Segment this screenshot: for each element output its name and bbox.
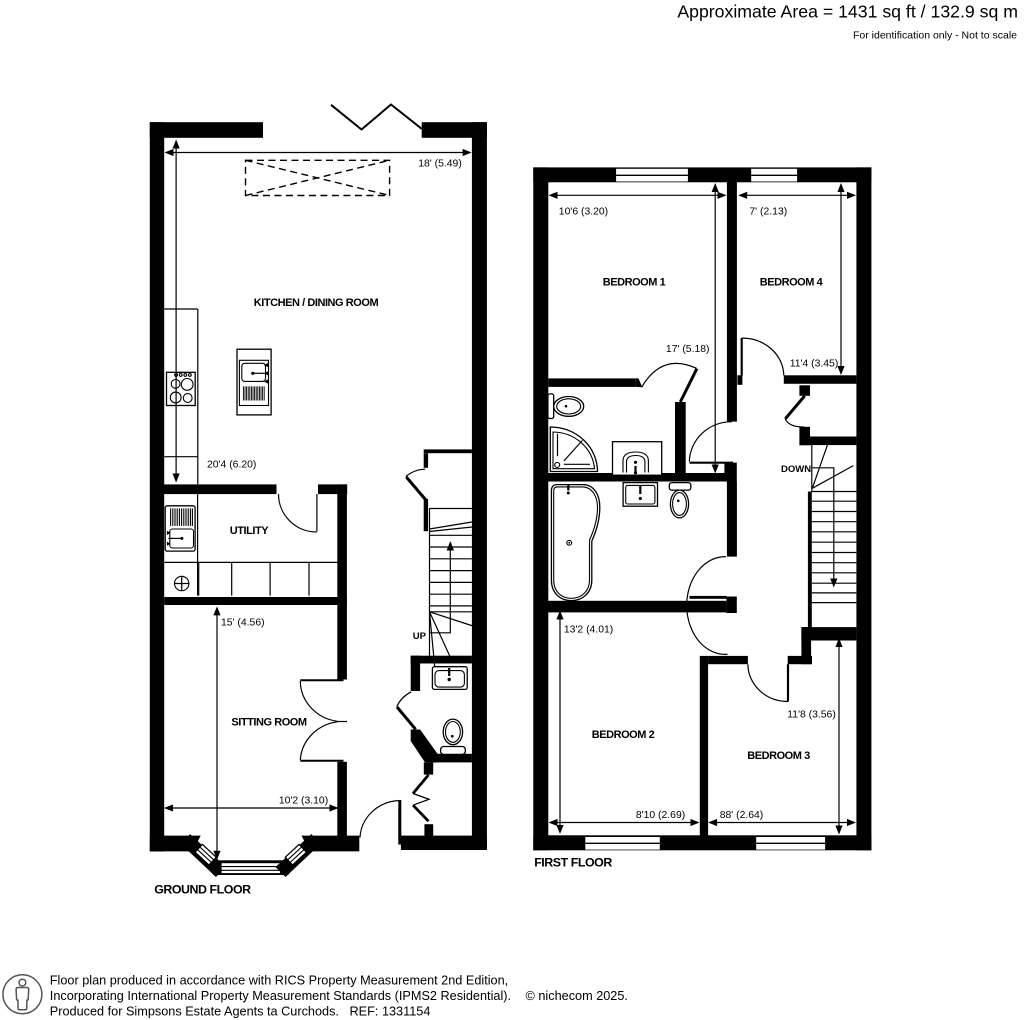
svg-text:17' (5.18): 17' (5.18) [666, 344, 710, 355]
svg-text:Incorporating International Pr: Incorporating International Property Mea… [50, 989, 511, 1003]
svg-text:© nichecom 2025.: © nichecom 2025. [526, 989, 628, 1003]
svg-text:DOWN: DOWN [781, 464, 811, 475]
svg-text:Approximate Area = 1431 sq ft: Approximate Area = 1431 sq ft / 132.9 sq… [677, 2, 1018, 22]
svg-text:Produced for Simpsons Estate A: Produced for Simpsons Estate Agents ta C… [50, 1004, 431, 1018]
svg-text:13'2 (4.01): 13'2 (4.01) [564, 624, 613, 635]
svg-text:KITCHEN / DINING ROOM: KITCHEN / DINING ROOM [254, 297, 379, 309]
svg-text:GROUND FLOOR: GROUND FLOOR [154, 883, 251, 897]
svg-text:15' (4.56): 15' (4.56) [221, 618, 265, 629]
svg-text:BEDROOM 4: BEDROOM 4 [760, 276, 824, 288]
svg-text:UP: UP [413, 631, 427, 642]
svg-text:18' (5.49): 18' (5.49) [418, 159, 462, 170]
svg-text:8'10 (2.69): 8'10 (2.69) [636, 810, 685, 821]
svg-text:BEDROOM 3: BEDROOM 3 [747, 750, 810, 762]
svg-text:For identification only - Not: For identification only - Not to scale [853, 30, 1017, 42]
svg-text:11'8 (3.56): 11'8 (3.56) [787, 710, 836, 721]
svg-text:7' (2.13): 7' (2.13) [749, 207, 787, 218]
svg-text:88' (2.64): 88' (2.64) [720, 810, 764, 821]
svg-text:SITTING ROOM: SITTING ROOM [231, 716, 307, 728]
svg-text:11'4 (3.45): 11'4 (3.45) [790, 359, 839, 370]
svg-text:10'6 (3.20): 10'6 (3.20) [559, 207, 608, 218]
svg-text:FIRST FLOOR: FIRST FLOOR [534, 855, 612, 869]
svg-text:10'2 (3.10): 10'2 (3.10) [279, 796, 328, 807]
svg-text:UTILITY: UTILITY [230, 525, 270, 537]
svg-text:BEDROOM 2: BEDROOM 2 [592, 729, 655, 741]
svg-text:20'4 (6.20): 20'4 (6.20) [207, 460, 256, 471]
svg-text:BEDROOM 1: BEDROOM 1 [603, 276, 666, 288]
svg-text:Floor plan produced in accorda: Floor plan produced in accordance with R… [50, 974, 508, 988]
